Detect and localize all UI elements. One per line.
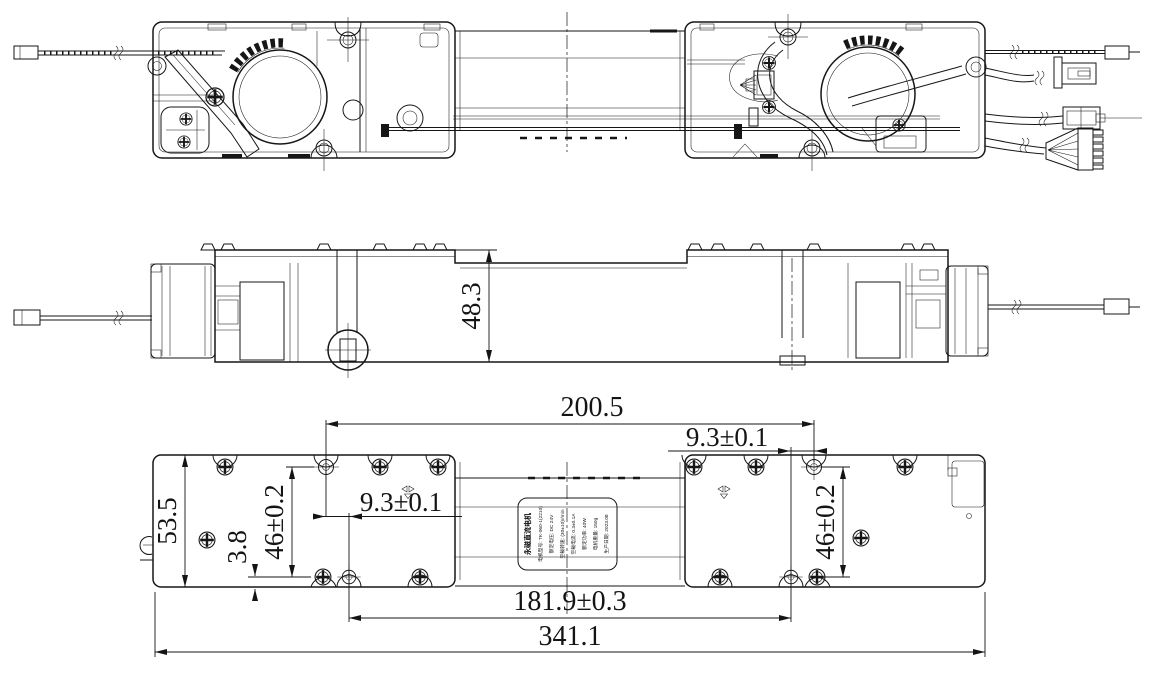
stop-block-right: [734, 124, 742, 139]
nameplate-line: 额定电压: DC 24V: [548, 514, 555, 553]
tube-top-view: [381, 12, 960, 152]
left-end-cap: [151, 264, 240, 358]
dim-46-right-label: 46±0.2: [810, 484, 840, 560]
drawing-canvas: 48.3 永磁直流电机 电机型号: TK-060-1(2210) 额定电压: D…: [0, 0, 1151, 680]
nameplate-line: 额定功率: 40W: [581, 518, 588, 550]
dim-3-8-label: 3.8: [222, 530, 252, 564]
stop-block-left: [381, 124, 389, 137]
nameplate-line: 生产日期: 2023.08: [603, 514, 610, 554]
top-bosses: [201, 244, 935, 250]
vent-ribs-right: [856, 282, 900, 358]
bottom-screw-left: [311, 129, 337, 171]
dim-9-3-left-label: 9.3±0.1: [360, 487, 442, 517]
vent-ribs-left: [240, 282, 284, 360]
two-pin-connector: [985, 107, 1142, 129]
dim-48-3-label: 48.3: [456, 282, 486, 329]
left-shaft-side: [14, 310, 152, 325]
bottom-left-block: [153, 455, 455, 587]
nameplate-title: 永磁直流电机: [523, 513, 532, 556]
right-end-cap: [906, 266, 988, 356]
dim-side-height: 48.3: [452, 250, 497, 362]
dim-46-left-label: 46±0.2: [259, 484, 289, 560]
dim-181-9-label: 181.9±0.3: [513, 586, 626, 617]
corner-notch: [948, 455, 984, 519]
right-shaft-side: [988, 299, 1140, 314]
bottom-dimensions: 200.5 9.3±0.1 9.3±0.1 53.5 46±0.2 46±0.2…: [152, 392, 985, 657]
top-screw-right: [768, 14, 808, 59]
t-plug-connector: [985, 57, 1096, 88]
bottom-view: 永磁直流电机 电机型号: TK-060-1(2210) 额定电压: DC 24V…: [140, 392, 985, 657]
side-body-outline: [215, 250, 948, 362]
gear-teeth-left: [233, 43, 285, 70]
internal-connector: [740, 71, 774, 99]
gearbox-left: [148, 17, 455, 171]
dim-53-5-label: 53.5: [152, 497, 182, 544]
nameplate-line: 空载转速: (30±10)r/min: [559, 509, 566, 558]
nameplate-line: 空载电流: 0.3±0.1A: [570, 513, 577, 555]
motor-circle-right: [821, 47, 915, 141]
pivot-screw: [206, 88, 224, 106]
nameplate-line: 电机型号: TK-060-1(2210): [537, 506, 544, 562]
right-channel: [780, 250, 805, 372]
nameplate-line: 电机重量: 150g: [592, 517, 599, 550]
adjuster-wheel: [325, 250, 371, 378]
dim-200-5-label: 200.5: [561, 392, 624, 423]
worm-roller: [749, 108, 758, 126]
top-screw-left: [327, 17, 369, 62]
side-view: 48.3: [14, 244, 1140, 378]
wiring-harness: [985, 45, 1142, 170]
dim-341-1-label: 341.1: [539, 621, 602, 652]
dim-9-3-right-label: 9.3±0.1: [686, 422, 768, 452]
mold-mark-icon: [718, 486, 730, 499]
screws-left-block: [199, 454, 450, 589]
gear-teeth-right: [845, 40, 903, 53]
lever-arm-right: [848, 66, 966, 106]
break-symbol: [114, 46, 123, 60]
left-shaft-top: [14, 46, 153, 60]
bottom-screw-right: [799, 129, 825, 171]
three-view-drawing: 48.3 永磁直流电机 电机型号: TK-060-1(2210) 额定电压: D…: [0, 0, 1151, 680]
gearbox-right: [685, 14, 986, 171]
nameplate-label: 永磁直流电机 电机型号: TK-060-1(2210) 额定电压: DC 24V…: [518, 498, 617, 570]
top-view: [14, 12, 1142, 171]
multi-pin-connector: [985, 128, 1103, 170]
